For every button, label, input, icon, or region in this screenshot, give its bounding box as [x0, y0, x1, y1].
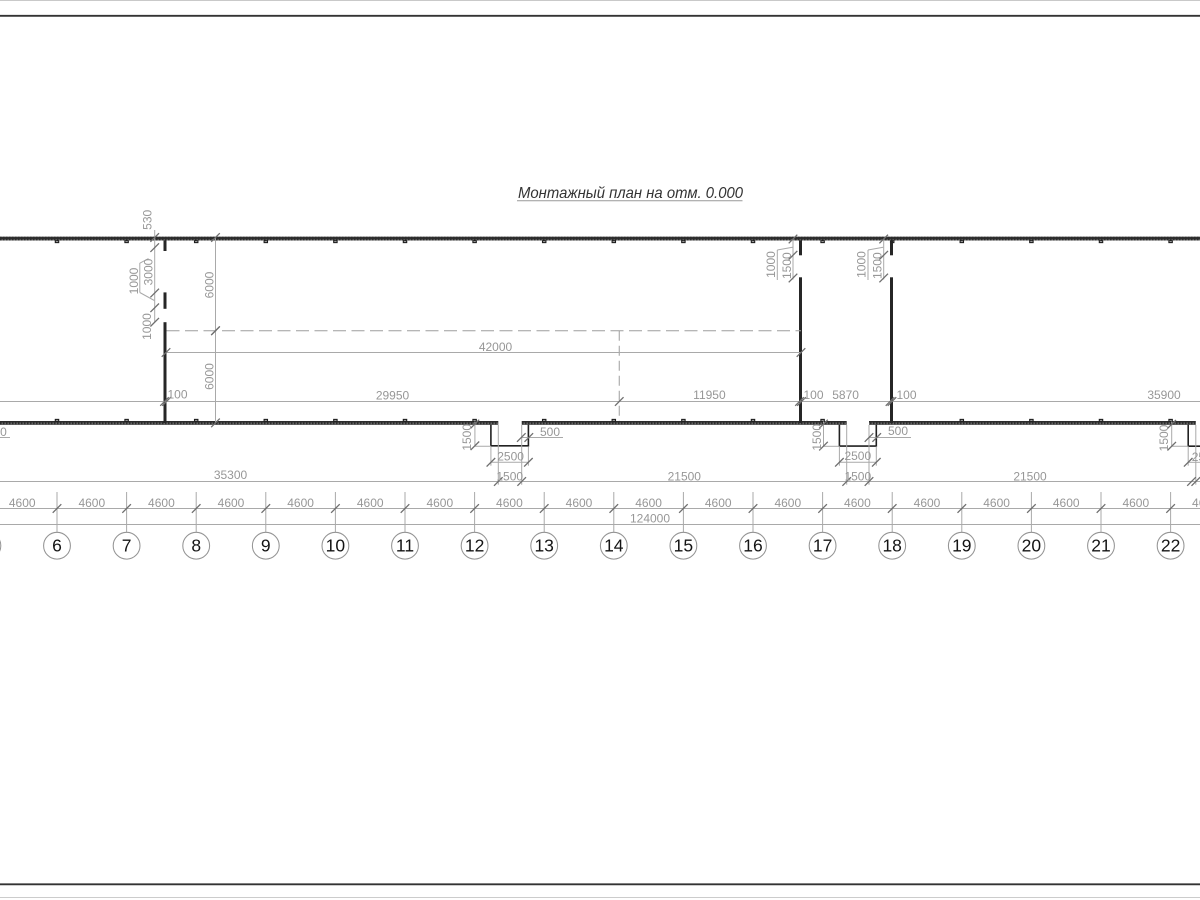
- svg-text:35900: 35900: [1147, 388, 1181, 402]
- svg-text:1000: 1000: [764, 251, 778, 278]
- svg-text:100: 100: [896, 388, 916, 402]
- svg-text:16: 16: [743, 536, 762, 556]
- svg-text:1500: 1500: [1157, 424, 1171, 451]
- svg-text:10: 10: [326, 536, 346, 556]
- svg-text:11950: 11950: [693, 388, 726, 402]
- svg-text:4600: 4600: [496, 496, 523, 510]
- svg-text:4600: 4600: [357, 496, 384, 510]
- svg-text:18: 18: [882, 536, 901, 556]
- svg-text:21500: 21500: [1013, 469, 1047, 483]
- svg-text:4600: 4600: [148, 496, 175, 510]
- svg-text:21: 21: [1091, 536, 1110, 556]
- svg-text:4600: 4600: [983, 496, 1010, 510]
- svg-text:1500: 1500: [871, 252, 885, 279]
- svg-text:100: 100: [167, 388, 187, 402]
- svg-text:21500: 21500: [668, 469, 702, 483]
- svg-text:29950: 29950: [376, 389, 410, 403]
- svg-text:6: 6: [52, 536, 62, 556]
- svg-text:4600: 4600: [1192, 496, 1200, 510]
- svg-text:1500: 1500: [844, 469, 871, 483]
- svg-text:1000: 1000: [855, 251, 869, 278]
- svg-text:35300: 35300: [214, 468, 248, 482]
- svg-text:6000: 6000: [203, 363, 217, 390]
- svg-text:13: 13: [534, 536, 553, 556]
- svg-text:2500: 2500: [497, 450, 524, 464]
- svg-text:1000: 1000: [140, 313, 154, 340]
- svg-text:15: 15: [674, 536, 693, 556]
- svg-text:4600: 4600: [287, 496, 314, 510]
- svg-text:4600: 4600: [1053, 496, 1080, 510]
- svg-text:3000: 3000: [142, 258, 156, 285]
- svg-text:20: 20: [1022, 536, 1042, 556]
- svg-text:19: 19: [952, 536, 971, 556]
- svg-text:4600: 4600: [566, 496, 593, 510]
- svg-text:1500: 1500: [780, 252, 794, 279]
- svg-text:7: 7: [122, 536, 132, 556]
- svg-text:4600: 4600: [78, 496, 105, 510]
- svg-text:9: 9: [261, 536, 271, 556]
- svg-text:4600: 4600: [1122, 496, 1149, 510]
- svg-text:4600: 4600: [218, 496, 245, 510]
- svg-text:500: 500: [540, 425, 560, 439]
- svg-text:124000: 124000: [630, 512, 670, 526]
- svg-text:2500: 2500: [844, 449, 871, 463]
- svg-text:4600: 4600: [426, 496, 453, 510]
- svg-text:42000: 42000: [479, 340, 513, 354]
- svg-text:1000: 1000: [127, 267, 141, 294]
- svg-text:4600: 4600: [9, 496, 36, 510]
- svg-text:14: 14: [604, 536, 624, 556]
- svg-text:Монтажный план на отм. 0.000: Монтажный план на отм. 0.000: [518, 185, 743, 202]
- svg-text:1500: 1500: [810, 424, 824, 451]
- svg-text:530: 530: [141, 209, 155, 229]
- svg-text:12: 12: [465, 536, 484, 556]
- svg-text:22: 22: [1161, 536, 1180, 556]
- svg-text:17: 17: [813, 536, 832, 556]
- svg-text:4600: 4600: [914, 496, 941, 510]
- svg-text:100: 100: [803, 388, 823, 402]
- svg-text:2500: 2500: [1192, 450, 1200, 464]
- svg-text:500: 500: [888, 424, 908, 438]
- svg-text:4600: 4600: [844, 496, 871, 510]
- svg-text:4600: 4600: [705, 496, 732, 510]
- svg-text:8: 8: [191, 536, 201, 556]
- svg-text:6000: 6000: [203, 271, 217, 298]
- svg-text:0: 0: [0, 425, 7, 439]
- svg-text:1500: 1500: [496, 469, 523, 483]
- svg-text:1500: 1500: [460, 424, 474, 451]
- svg-text:5870: 5870: [832, 388, 859, 402]
- svg-text:4600: 4600: [774, 496, 801, 510]
- svg-text:11: 11: [396, 536, 414, 556]
- svg-text:4600: 4600: [635, 496, 662, 510]
